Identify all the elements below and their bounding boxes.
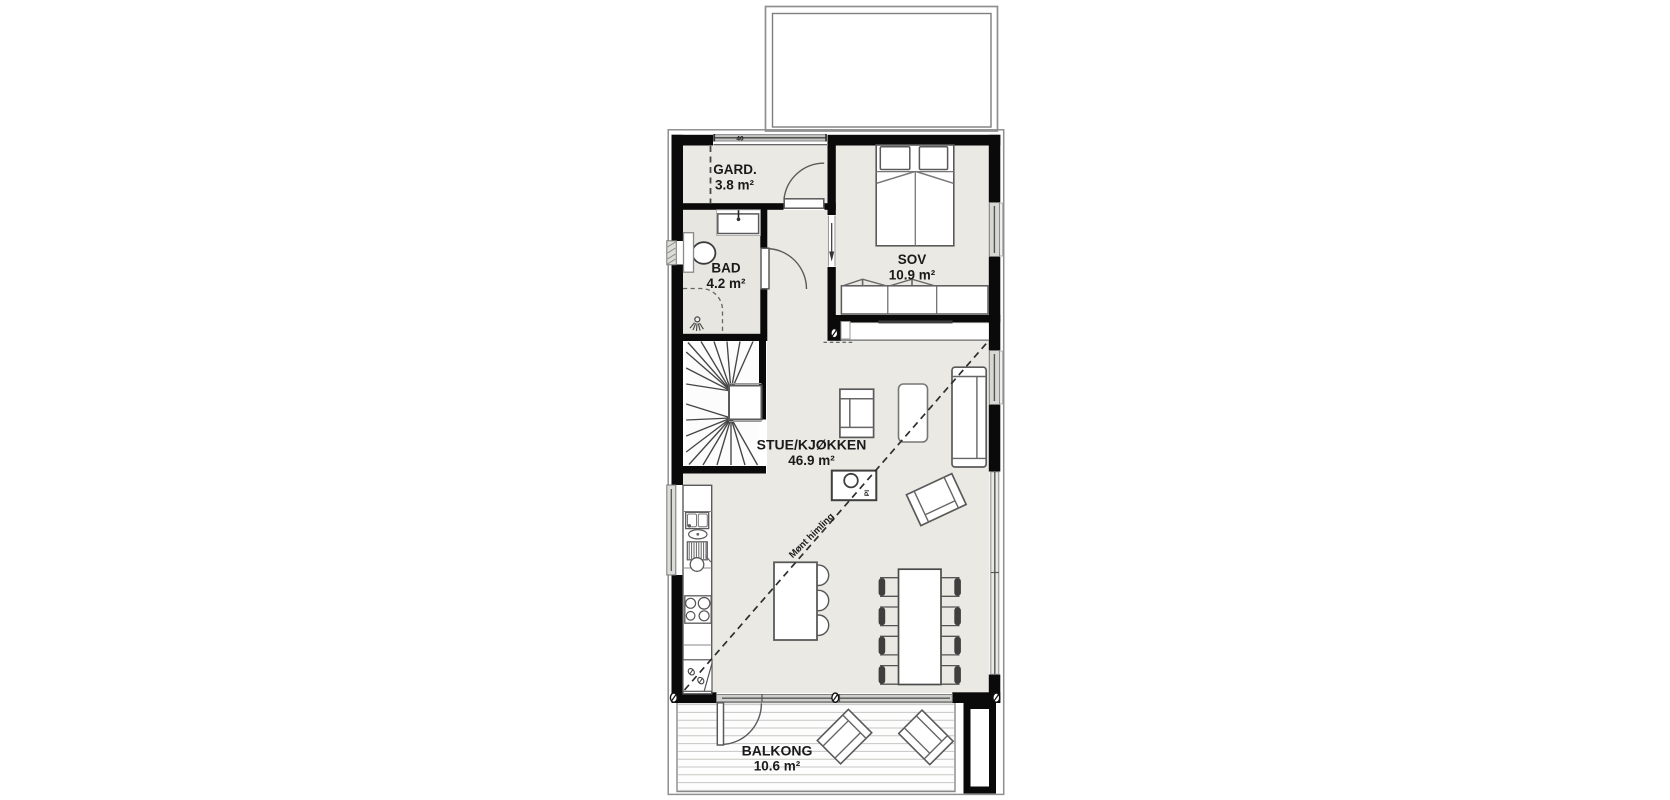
svg-text:4.2 m²: 4.2 m² <box>706 276 746 291</box>
svg-text:40: 40 <box>736 135 744 142</box>
svg-text:SOV: SOV <box>898 252 927 267</box>
svg-text:GARD.: GARD. <box>713 162 757 177</box>
svg-text:10.9 m²: 10.9 m² <box>889 268 936 283</box>
svg-text:10.6 m²: 10.6 m² <box>754 759 801 774</box>
svg-text:PI: PI <box>864 490 871 496</box>
svg-text:3.8 m²: 3.8 m² <box>715 178 755 193</box>
svg-text:46.9 m²: 46.9 m² <box>788 453 835 468</box>
svg-text:BALKONG: BALKONG <box>742 743 813 759</box>
svg-text:STUE/KJØKKEN: STUE/KJØKKEN <box>757 437 867 453</box>
svg-text:BAD: BAD <box>711 261 740 276</box>
